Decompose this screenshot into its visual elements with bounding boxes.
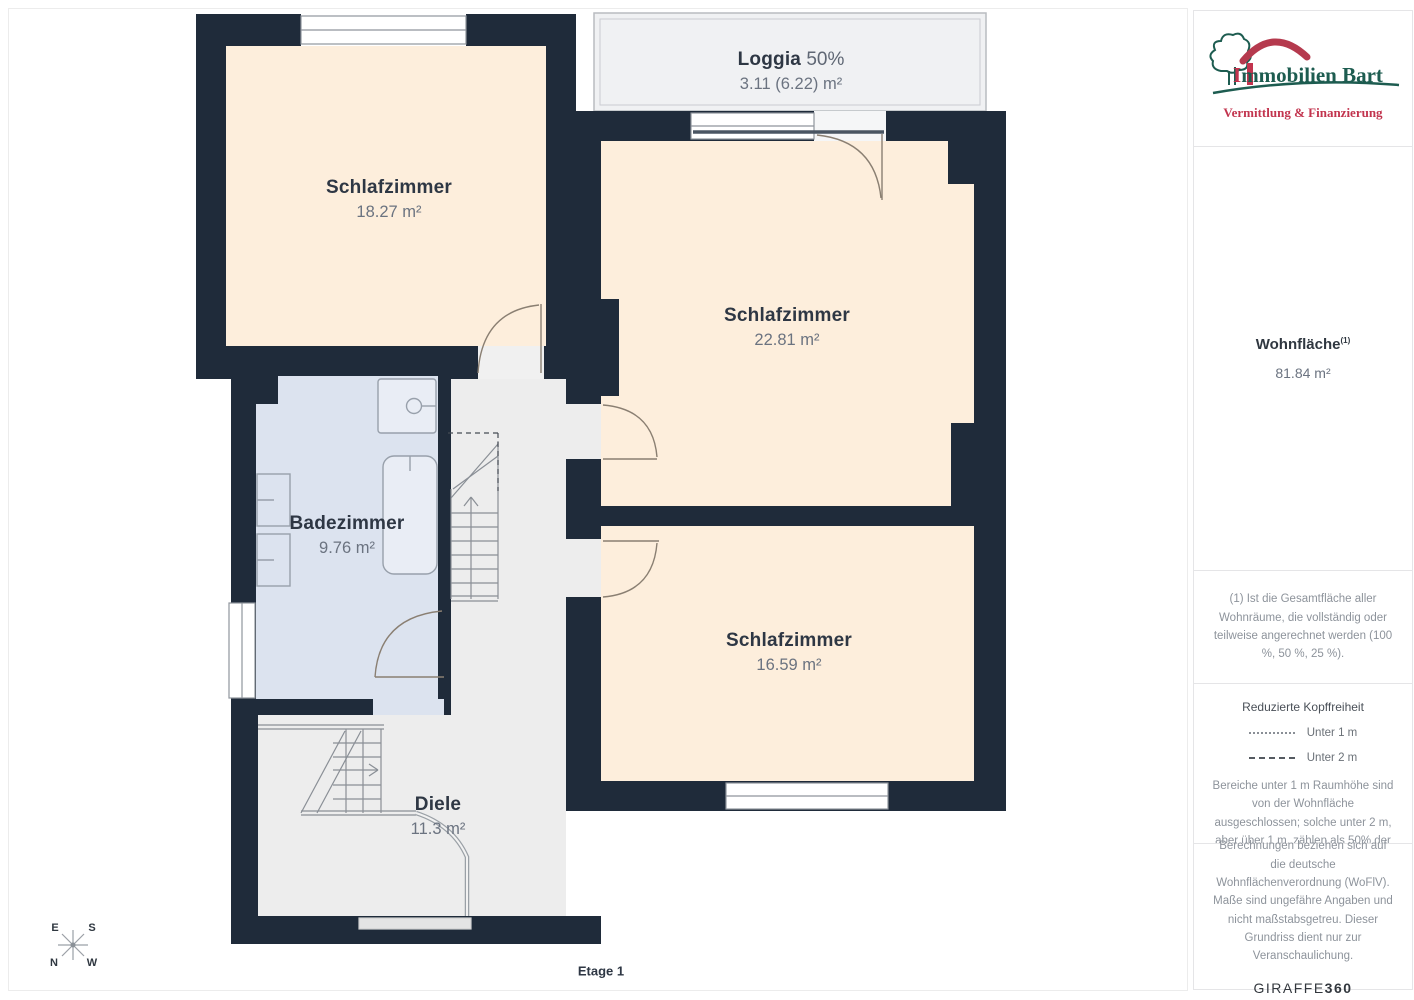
compass-e: E [51,922,58,934]
wall-corner-jog [256,376,278,404]
room-label-schlafzimmer-1: Schlafzimmer 18.27 m² [326,175,452,223]
room-label-badezimmer: Badezimmer 9.76 m² [290,511,405,559]
agency-logo: Immobilien Bart Vermittlung & Finanzieru… [1193,10,1413,147]
footnote-text: (1) Ist die Gesamtfläche aller Wohnräume… [1194,590,1412,664]
legend-item-under-1m: Unter 1 m [1194,727,1412,739]
room-label-loggia: Loggia 50% 3.11 (6.22) m² [738,47,845,95]
floorplan-drawing [9,9,1187,990]
disclaimer-text: Berechnungen beziehen sich auf die deuts… [1194,837,1412,966]
living-area-label: Wohnfläche(1) [1256,336,1351,353]
compass-icon: E S N W [35,911,113,977]
dashed-line-icon [1249,757,1295,759]
room-label-schlafzimmer-2: Schlafzimmer 22.81 m² [724,303,850,351]
sink-icon [378,379,436,433]
room-label-schlafzimmer-3: Schlafzimmer 16.59 m² [726,628,852,676]
room-label-diele: Diele 11.3 m² [411,792,466,840]
wall-pilaster [601,299,619,396]
info-sidebar: Immobilien Bart Vermittlung & Finanzieru… [1193,0,1414,1000]
window-schlafzimmer-3 [726,783,888,809]
compass-star [35,911,113,977]
entry-inset [359,918,471,929]
living-area-value: 81.84 m² [1256,365,1351,381]
living-area-summary: Wohnfläche(1) 81.84 m² [1193,146,1413,571]
window-badezimmer [229,603,255,698]
giraffe360-logo: GIRAFFE360 [1253,980,1352,996]
legend-item-under-2m: Unter 2 m [1194,752,1412,764]
compass-w: W [87,957,97,969]
compass-s: S [88,922,95,934]
logo-subtitle: Vermittlung & Finanzierung [1203,105,1403,121]
window-schlafzimmer-1 [301,16,466,44]
plan-page: Schlafzimmer 18.27 m² Loggia 50% 3.11 (6… [8,8,1188,991]
floorplan-document: Schlafzimmer 18.27 m² Loggia 50% 3.11 (6… [0,0,1414,1000]
disclaimer-box: Berechnungen beziehen sich auf die deuts… [1193,843,1413,990]
headroom-legend: Reduzierte Kopffreiheit Unter 1 m Unter … [1193,683,1413,844]
floor-label: Etage 1 [578,964,624,979]
compass-n: N [50,957,58,969]
footnote-box: (1) Ist die Gesamtfläche aller Wohnräume… [1193,570,1413,684]
legend-title: Reduzierte Kopffreiheit [1194,700,1412,714]
logo-title: Immobilien Bart [1233,63,1383,88]
dotted-line-icon [1249,732,1295,734]
